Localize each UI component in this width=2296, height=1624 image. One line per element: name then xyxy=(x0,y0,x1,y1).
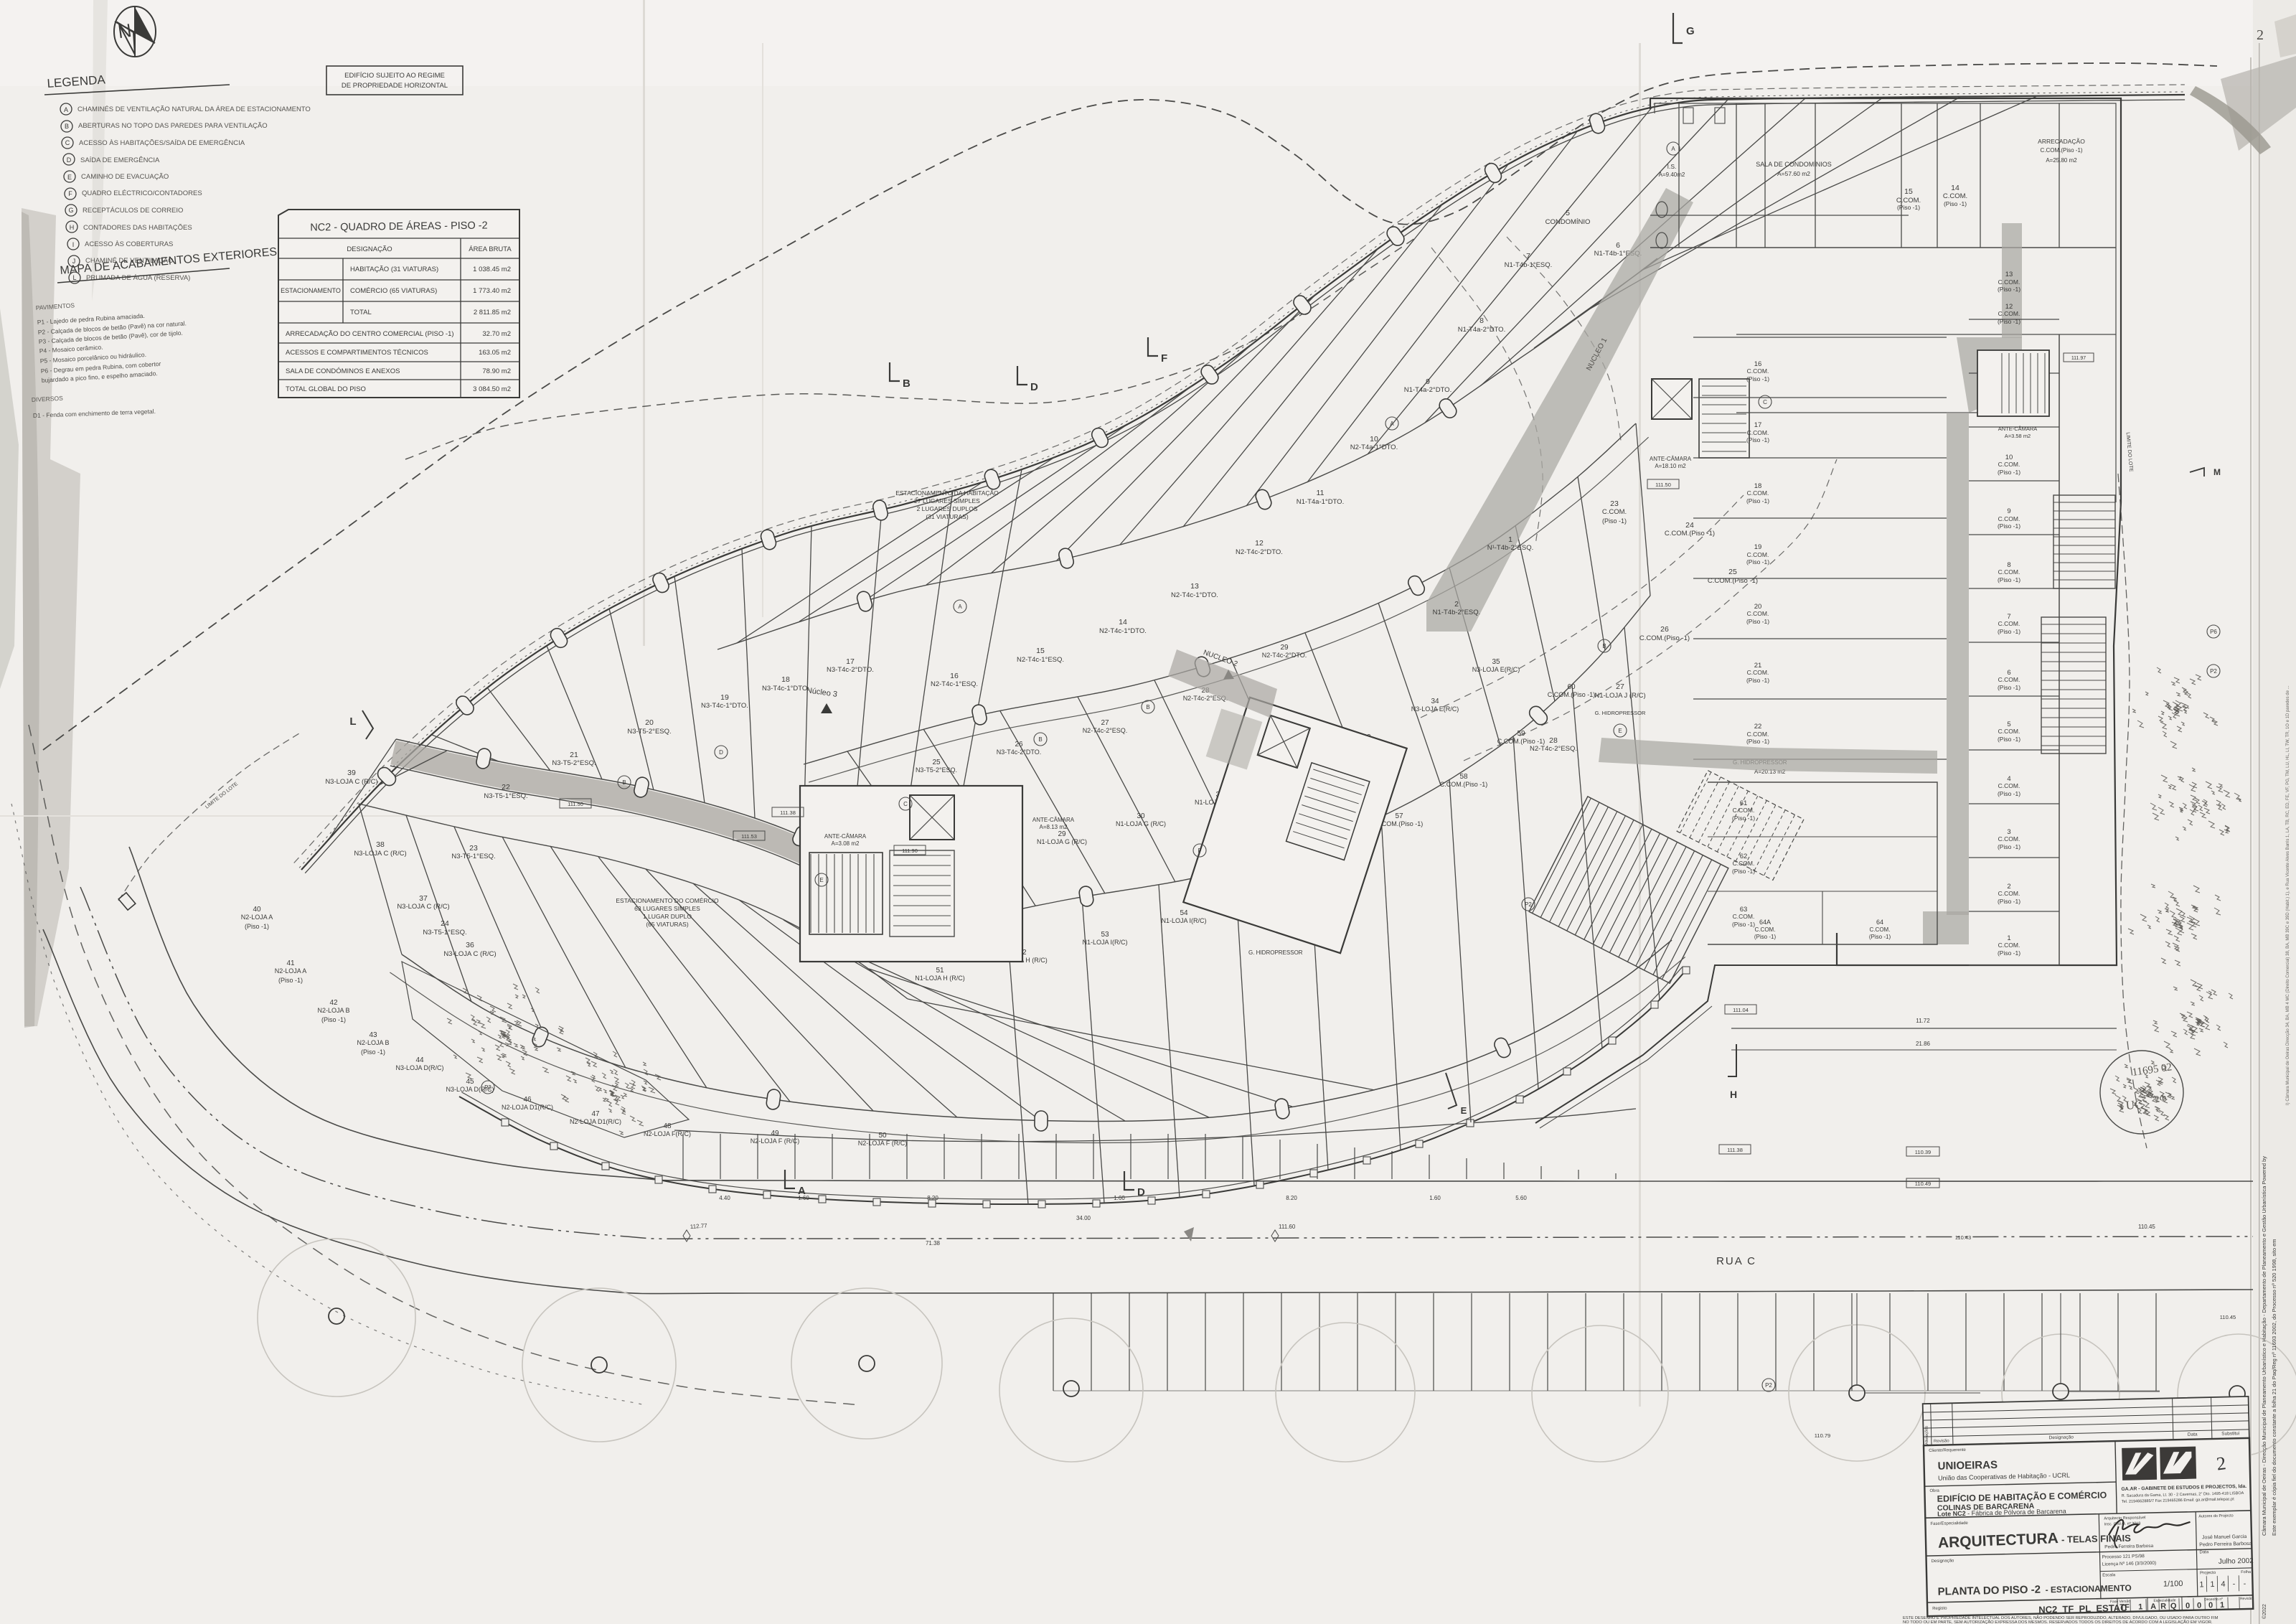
svg-text:SALA DE CONDÓMINOS E ANEXOS: SALA DE CONDÓMINOS E ANEXOS xyxy=(286,367,400,375)
svg-text:CONDOMÍNIO: CONDOMÍNIO xyxy=(1545,218,1591,226)
svg-text:2 LUGARES DUPLOS: 2 LUGARES DUPLOS xyxy=(916,505,977,512)
svg-text:I: I xyxy=(72,241,75,248)
svg-text:Julho 2002: Julho 2002 xyxy=(2219,1557,2254,1566)
svg-text:43: 43 xyxy=(369,1031,377,1039)
svg-text:N1-LOJA G (R/C): N1-LOJA G (R/C) xyxy=(1037,838,1087,845)
svg-text:ESTE DESENHO É PROPRIEDADE INT: ESTE DESENHO É PROPRIEDADE INTELECTUAL D… xyxy=(1903,1615,2219,1620)
svg-text:Este exemplar é cópia fiel do: Este exemplar é cópia fiel do documento … xyxy=(2271,1239,2277,1536)
svg-text:21.86: 21.86 xyxy=(1916,1041,1931,1047)
svg-text:PRUMADA DE ÁGUA (RESERVA): PRUMADA DE ÁGUA (RESERVA) xyxy=(86,274,190,282)
svg-text:ACESSOS E COMPARTIMENTOS TÉCNI: ACESSOS E COMPARTIMENTOS TÉCNICOS xyxy=(286,349,428,357)
svg-text:C.COM.: C.COM. xyxy=(1747,489,1769,497)
svg-text:9: 9 xyxy=(2007,507,2010,515)
svg-text:(Piso -1): (Piso -1) xyxy=(1746,558,1769,565)
svg-text:A: A xyxy=(798,1185,806,1197)
svg-text:Substitui: Substitui xyxy=(2221,1431,2239,1437)
svg-text:3 084.50 m2: 3 084.50 m2 xyxy=(473,385,511,393)
svg-text:DE PROPRIEDADE HORIZONTAL: DE PROPRIEDADE HORIZONTAL xyxy=(342,82,448,90)
svg-text:163.05 m2: 163.05 m2 xyxy=(479,349,511,357)
svg-text:110.39: 110.39 xyxy=(1915,1149,1931,1155)
svg-text:2: 2 xyxy=(2257,27,2264,43)
svg-text:N2-T4c-2°DTO.: N2-T4c-2°DTO. xyxy=(1262,652,1307,659)
svg-text:N3-LOJA C (R/C): N3-LOJA C (R/C) xyxy=(325,778,377,786)
svg-text:111.50: 111.50 xyxy=(1655,482,1671,488)
svg-text:D: D xyxy=(1030,381,1038,393)
svg-text:A: A xyxy=(1390,421,1394,427)
svg-text:(Piso -1): (Piso -1) xyxy=(1746,618,1769,625)
svg-text:64: 64 xyxy=(1876,919,1883,926)
svg-text:I) Câmara Municipal de Oeiras: I) Câmara Municipal de Oeiras Direcção 3… xyxy=(2286,685,2290,1105)
svg-text:(Piso -1): (Piso -1) xyxy=(1944,200,1967,207)
svg-text:(Piso -1): (Piso -1) xyxy=(1998,576,2020,583)
svg-text:C.COM.: C.COM. xyxy=(1755,926,1776,933)
svg-text:A=18.10 m2: A=18.10 m2 xyxy=(1655,463,1686,469)
svg-text:C.COM.: C.COM. xyxy=(1733,807,1755,814)
svg-text:N1-T4a-2°DTO.: N1-T4a-2°DTO. xyxy=(1404,386,1452,394)
svg-text:38: 38 xyxy=(376,840,385,849)
svg-text:TOTAL GLOBAL DO PISO: TOTAL GLOBAL DO PISO xyxy=(286,385,366,393)
svg-text:36: 36 xyxy=(466,941,474,949)
svg-text:17: 17 xyxy=(846,657,855,666)
svg-text:N2-LOJA F (R/C): N2-LOJA F (R/C) xyxy=(751,1137,800,1145)
svg-text:ACESSO ÀS HABITAÇÕES/SAÍDA DE: ACESSO ÀS HABITAÇÕES/SAÍDA DE EMERGÊNCIA xyxy=(79,139,245,147)
svg-text:110.45: 110.45 xyxy=(2220,1314,2236,1320)
svg-text:DESIGNAÇÃO: DESIGNAÇÃO xyxy=(347,245,392,253)
svg-text:5: 5 xyxy=(1566,209,1570,217)
svg-text:27 LUGARES SIMPLES: 27 LUGARES SIMPLES xyxy=(914,497,980,504)
svg-text:(Piso -1): (Piso -1) xyxy=(1897,204,1920,211)
svg-text:C.COM.(Piso -1): C.COM.(Piso -1) xyxy=(1665,530,1715,538)
svg-text:A=25.80 m2: A=25.80 m2 xyxy=(2046,157,2077,164)
svg-text:50: 50 xyxy=(878,1132,887,1140)
svg-text:(Piso -1): (Piso -1) xyxy=(1746,375,1769,382)
svg-text:N2-LOJA A: N2-LOJA A xyxy=(241,914,273,921)
svg-text:111.90: 111.90 xyxy=(902,848,918,854)
svg-text:A=3.08 m2: A=3.08 m2 xyxy=(832,840,860,847)
svg-text:60: 60 xyxy=(1567,683,1576,691)
svg-text:PLANTA DO PISO -2: PLANTA DO PISO -2 xyxy=(1937,1584,2041,1598)
svg-text:Processo 121 PS/98: Processo 121 PS/98 xyxy=(2102,1554,2145,1559)
svg-text:Autores do Projecto: Autores do Projecto xyxy=(2198,1513,2233,1519)
svg-text:N3-LOJA C (R/C): N3-LOJA C (R/C) xyxy=(397,903,449,911)
svg-text:C.COM.: C.COM. xyxy=(1747,669,1769,676)
svg-text:53: 53 xyxy=(1101,931,1109,939)
svg-text:27: 27 xyxy=(1101,719,1109,727)
svg-text:4: 4 xyxy=(2221,1580,2225,1589)
svg-text:- ESTACIONAMENTO: - ESTACIONAMENTO xyxy=(2045,1583,2132,1595)
svg-text:N1-LOJA J (R/C): N1-LOJA J (R/C) xyxy=(1594,692,1645,700)
svg-text:N3-LOJA C (R/C): N3-LOJA C (R/C) xyxy=(354,850,406,858)
svg-text:58: 58 xyxy=(1459,773,1468,781)
svg-text:HABITAÇÃO (31 VIATURAS): HABITAÇÃO (31 VIATURAS) xyxy=(350,266,438,273)
svg-text:C: C xyxy=(903,801,908,807)
svg-text:0: 0 xyxy=(2186,1602,2190,1610)
svg-text:E: E xyxy=(67,174,72,181)
svg-text:G: G xyxy=(68,207,73,214)
svg-text:110.43: 110.43 xyxy=(1955,1234,1971,1241)
svg-text:ESTACIONAMENTO: ESTACIONAMENTO xyxy=(281,287,341,294)
svg-text:(Piso -1): (Piso -1) xyxy=(1998,790,2020,797)
svg-text:(Piso -1): (Piso -1) xyxy=(1998,318,2020,325)
svg-text:TOTAL: TOTAL xyxy=(350,309,372,316)
svg-text:C.COM.: C.COM. xyxy=(1747,367,1769,375)
svg-text:-: - xyxy=(2233,1580,2236,1588)
svg-text:N1-LOJA H (R/C): N1-LOJA H (R/C) xyxy=(915,975,965,982)
svg-text:28: 28 xyxy=(1549,736,1558,745)
svg-text:11.72: 11.72 xyxy=(1916,1018,1930,1024)
svg-text:34.00: 34.00 xyxy=(1076,1215,1091,1221)
svg-text:N3-LOJA D(R/C): N3-LOJA D(R/C) xyxy=(395,1064,443,1071)
svg-text:N1-LOJA I(R/C): N1-LOJA I(R/C) xyxy=(1082,939,1127,946)
svg-text:B: B xyxy=(1146,704,1149,710)
svg-text:C.COM.: C.COM. xyxy=(1998,310,2020,317)
svg-text:ÁREA BRUTA: ÁREA BRUTA xyxy=(469,245,512,253)
svg-text:CAMINHO DE EVACUAÇÃO: CAMINHO DE EVACUAÇÃO xyxy=(81,173,169,181)
svg-text:18: 18 xyxy=(781,675,790,684)
svg-text:1: 1 xyxy=(2210,1580,2214,1589)
svg-text:13: 13 xyxy=(2005,271,2013,278)
svg-text:Folha: Folha xyxy=(2241,1570,2252,1574)
svg-text:111.97: 111.97 xyxy=(2071,356,2086,361)
svg-text:20: 20 xyxy=(645,718,654,727)
svg-text:110.45: 110.45 xyxy=(2138,1224,2155,1230)
svg-text:N2-T4c-1°ESQ.: N2-T4c-1°ESQ. xyxy=(931,680,978,688)
svg-text:F: F xyxy=(68,190,72,197)
svg-text:71.38: 71.38 xyxy=(926,1240,941,1247)
svg-text:22: 22 xyxy=(502,783,510,792)
svg-text:ESTACIONAMENTO DA HABITAÇÃO: ESTACIONAMENTO DA HABITAÇÃO xyxy=(895,489,999,497)
svg-text:Revisão: Revisão xyxy=(2240,1597,2253,1601)
svg-text:C.COM.: C.COM. xyxy=(1747,429,1769,436)
svg-text:Projecto: Projecto xyxy=(2200,1571,2216,1576)
svg-text:64A: 64A xyxy=(1759,919,1771,926)
svg-text:N2-LOJA B: N2-LOJA B xyxy=(317,1007,349,1014)
svg-text:Revisão: Revisão xyxy=(1934,1439,1949,1444)
svg-text:M: M xyxy=(2213,467,2221,477)
svg-text:H: H xyxy=(70,224,75,231)
svg-text:C.COM.: C.COM. xyxy=(1998,942,2020,949)
svg-text:12: 12 xyxy=(1255,539,1264,548)
svg-text:44: 44 xyxy=(415,1056,424,1064)
svg-text:A: A xyxy=(2150,1602,2156,1611)
svg-text:(Piso -1): (Piso -1) xyxy=(1998,684,2020,691)
svg-text:N3-T5-2°ESQ.: N3-T5-2°ESQ. xyxy=(916,766,957,774)
svg-text:A=57.60 m2: A=57.60 m2 xyxy=(1777,170,1810,177)
svg-text:D: D xyxy=(719,749,723,756)
svg-text:N1-LOJA I(R/C): N1-LOJA I(R/C) xyxy=(1161,917,1206,924)
svg-text:B: B xyxy=(65,123,69,130)
svg-text:N1-T4a-2°DTO.: N1-T4a-2°DTO. xyxy=(1458,326,1505,334)
svg-text:N2-LOJA F(R/C): N2-LOJA F(R/C) xyxy=(644,1130,691,1137)
svg-text:Data: Data xyxy=(2188,1432,2198,1437)
svg-text:P6: P6 xyxy=(2210,629,2217,635)
svg-text:25: 25 xyxy=(1728,568,1737,576)
svg-text:I.S.: I.S. xyxy=(1667,163,1677,170)
svg-text:Fase/Especialidade: Fase/Especialidade xyxy=(1930,1521,1968,1526)
svg-text:ANTE-CÂMARA: ANTE-CÂMARA xyxy=(824,833,867,840)
svg-text:C.COM.: C.COM. xyxy=(1870,926,1891,933)
svg-text:(Piso -1): (Piso -1) xyxy=(1732,868,1755,875)
svg-text:C.COM.: C.COM. xyxy=(1998,728,2020,735)
svg-text:0: 0 xyxy=(2208,1601,2213,1610)
svg-text:0: 0 xyxy=(2197,1601,2201,1610)
svg-text:Designação: Designação xyxy=(1932,1559,1954,1564)
svg-text:RUA C: RUA C xyxy=(1716,1255,1756,1267)
svg-text:(Piso -1): (Piso -1) xyxy=(1602,517,1627,525)
svg-text:Q: Q xyxy=(2170,1602,2177,1610)
svg-text:N3-T5-1°ESQ.: N3-T5-1°ESQ. xyxy=(423,929,466,937)
svg-text:N1-T4a-1°DTO.: N1-T4a-1°DTO. xyxy=(1297,498,1344,506)
svg-text:Câmara Municipal de Oeiras - D: Câmara Municipal de Oeiras - Direcção Mu… xyxy=(2261,1156,2267,1536)
svg-text:UC: UC xyxy=(2125,1097,2143,1112)
svg-text:17: 17 xyxy=(1754,421,1762,429)
svg-text:1: 1 xyxy=(2199,1580,2203,1589)
svg-text:(Piso -1): (Piso -1) xyxy=(1998,949,2020,957)
svg-text:(Piso -1): (Piso -1) xyxy=(1998,469,2020,476)
svg-text:N3-T5-1°ESQ.: N3-T5-1°ESQ. xyxy=(484,792,527,800)
svg-text:N3-T4c-1°DTO.: N3-T4c-1°DTO. xyxy=(701,702,748,710)
svg-text:111.50: 111.50 xyxy=(568,801,583,807)
svg-text:C.COM.(Piso -1): C.COM.(Piso -1) xyxy=(2040,147,2082,154)
svg-text:6: 6 xyxy=(1616,241,1620,250)
svg-text:15: 15 xyxy=(1904,187,1913,196)
svg-text:E: E xyxy=(1461,1105,1467,1116)
svg-text:ANTE-CÂMARA: ANTE-CÂMARA xyxy=(1650,456,1692,462)
svg-text:(Piso -1): (Piso -1) xyxy=(1998,286,2020,293)
svg-text:1/100: 1/100 xyxy=(2163,1580,2183,1589)
svg-text:A=8.13 m2: A=8.13 m2 xyxy=(1040,824,1068,830)
svg-text:40: 40 xyxy=(253,906,261,914)
svg-text:(Piso -1): (Piso -1) xyxy=(361,1048,385,1056)
svg-text:N3-LOJA C (R/C): N3-LOJA C (R/C) xyxy=(443,950,496,958)
svg-text:C.COM.: C.COM. xyxy=(1998,515,2020,522)
svg-text:(Piso -1): (Piso -1) xyxy=(1746,738,1769,745)
svg-text:2Φ: 2Φ xyxy=(2154,1092,2168,1105)
svg-text:CONTADORES DAS HABITAÇÕES: CONTADORES DAS HABITAÇÕES xyxy=(83,224,192,232)
svg-text:Obra: Obra xyxy=(1929,1489,1939,1493)
svg-text:9: 9 xyxy=(1426,377,1430,386)
svg-text:30: 30 xyxy=(1137,812,1145,820)
svg-text:F: F xyxy=(1198,848,1202,854)
svg-text:13: 13 xyxy=(1190,582,1199,591)
svg-text:78.90 m2: 78.90 m2 xyxy=(482,367,511,375)
svg-text:35: 35 xyxy=(1492,658,1500,666)
svg-text:(65 VIATURAS): (65 VIATURAS) xyxy=(646,921,689,928)
svg-text:R: R xyxy=(2160,1602,2166,1611)
svg-text:39: 39 xyxy=(347,769,356,777)
svg-text:C: C xyxy=(65,139,70,146)
svg-text:(Piso -1): (Piso -1) xyxy=(1998,736,2020,743)
svg-text:B: B xyxy=(1038,736,1042,743)
svg-text:57: 57 xyxy=(1395,812,1403,820)
svg-text:P2: P2 xyxy=(2210,668,2217,675)
svg-text:23: 23 xyxy=(1610,499,1619,508)
svg-text:A=9.40m2: A=9.40m2 xyxy=(1659,172,1685,178)
svg-text:C.COM.: C.COM. xyxy=(1747,551,1769,558)
svg-text:110.79: 110.79 xyxy=(1815,1432,1830,1439)
svg-text:16: 16 xyxy=(950,672,959,680)
svg-text:C.COM.: C.COM. xyxy=(1998,676,2020,683)
svg-text:37: 37 xyxy=(419,894,428,903)
svg-text:(Piso -1): (Piso -1) xyxy=(1998,898,2020,905)
svg-text:Registo: Registo xyxy=(1932,1606,1947,1610)
svg-text:P2: P2 xyxy=(484,1084,491,1091)
svg-text:N3-T5-1°ESQ.: N3-T5-1°ESQ. xyxy=(451,853,495,860)
svg-text:C.COM.: C.COM. xyxy=(1998,278,2020,286)
svg-text:A: A xyxy=(64,106,68,113)
svg-text:N2-T4c-1°DTO.: N2-T4c-1°DTO. xyxy=(1171,591,1218,599)
svg-text:E: E xyxy=(819,877,823,883)
svg-text:111.04: 111.04 xyxy=(1733,1007,1749,1013)
svg-text:(Piso -1): (Piso -1) xyxy=(1998,843,2020,850)
svg-text:N2-T4c-2°ESQ.: N2-T4c-2°ESQ. xyxy=(1530,745,1577,753)
svg-text:15: 15 xyxy=(1036,647,1045,655)
svg-text:2 811.85 m2: 2 811.85 m2 xyxy=(474,309,511,316)
svg-text:21: 21 xyxy=(570,751,578,759)
svg-text:F: F xyxy=(1161,352,1167,365)
svg-text:14: 14 xyxy=(1119,618,1127,626)
svg-text:(Piso -1): (Piso -1) xyxy=(278,977,303,984)
svg-text:D: D xyxy=(1137,1186,1145,1198)
svg-text:CHAMINÉS DE VENTILAÇÃO NATURAL: CHAMINÉS DE VENTILAÇÃO NATURAL DA ÁREA D… xyxy=(77,105,311,113)
svg-text:Designação: Designação xyxy=(2049,1435,2074,1440)
svg-text:1.60: 1.60 xyxy=(1114,1195,1125,1201)
svg-text:Alterações: Alterações xyxy=(1924,1426,1929,1445)
svg-text:N2-T4c-2°ESQ.: N2-T4c-2°ESQ. xyxy=(1083,727,1128,734)
svg-text:C.COM.(Piso -1): C.COM.(Piso -1) xyxy=(1548,691,1596,698)
svg-text:A: A xyxy=(1671,146,1675,152)
svg-text:N2-T4c-1°DTO.: N2-T4c-1°DTO. xyxy=(1099,627,1147,635)
svg-text:UNIOEIRAS: UNIOEIRAS xyxy=(1937,1459,1998,1473)
svg-text:1 773.40 m2: 1 773.40 m2 xyxy=(473,287,511,295)
svg-text:N1-LOJA G (R/C): N1-LOJA G (R/C) xyxy=(1116,820,1166,827)
svg-text:ANTE-CÂMARA: ANTE-CÂMARA xyxy=(1998,426,2038,432)
svg-text:(Piso -1): (Piso -1) xyxy=(321,1016,346,1023)
svg-text:P2: P2 xyxy=(1525,901,1532,908)
svg-text:©2022: ©2022 xyxy=(2262,1604,2267,1619)
svg-text:1: 1 xyxy=(1508,535,1512,544)
svg-text:112.77: 112.77 xyxy=(690,1222,708,1230)
svg-text:8: 8 xyxy=(1479,316,1484,325)
svg-text:25: 25 xyxy=(932,759,941,766)
svg-text:C.COM.: C.COM. xyxy=(1943,192,1967,200)
svg-text:N¹-T4b-2°ESQ.: N¹-T4b-2°ESQ. xyxy=(1487,544,1534,552)
svg-text:(Piso -1): (Piso -1) xyxy=(1869,934,1891,940)
svg-text:19: 19 xyxy=(1754,543,1762,551)
svg-text:(Piso -1): (Piso -1) xyxy=(1998,628,2020,635)
svg-text:(Piso -1): (Piso -1) xyxy=(245,923,269,930)
svg-text:1.60: 1.60 xyxy=(1429,1195,1441,1201)
svg-text:N2-T4c-2°DTO.: N2-T4c-2°DTO. xyxy=(1236,548,1283,556)
svg-text:A: A xyxy=(958,604,962,610)
svg-text:1 038.45 m2: 1 038.45 m2 xyxy=(473,266,511,273)
svg-text:C.COM.(Piso -1): C.COM.(Piso -1) xyxy=(1440,781,1488,788)
svg-text:63 LUGARES SIMPLES: 63 LUGARES SIMPLES xyxy=(634,905,700,912)
svg-text:49: 49 xyxy=(771,1130,779,1137)
svg-text:ESTACIONAMENTO DO COMÉRCIO: ESTACIONAMENTO DO COMÉRCIO xyxy=(616,897,719,904)
svg-text:N1-T4b-2°ESQ.: N1-T4b-2°ESQ. xyxy=(1433,609,1481,616)
svg-text:TF: TF xyxy=(2119,1603,2130,1612)
svg-text:(Piso -1): (Piso -1) xyxy=(1746,677,1769,684)
svg-text:N2-T4a-1°DTO.: N2-T4a-1°DTO. xyxy=(1350,443,1398,451)
svg-text:26: 26 xyxy=(1660,625,1669,634)
svg-text:111.60: 111.60 xyxy=(1279,1224,1296,1230)
svg-text:N2-LOJA A: N2-LOJA A xyxy=(275,967,307,975)
svg-text:COMÉRCIO (65 VIATURAS): COMÉRCIO (65 VIATURAS) xyxy=(350,287,437,295)
svg-text:N2-LOJA F (R/C): N2-LOJA F (R/C) xyxy=(858,1140,908,1147)
svg-text:EDIFÍCIO SUJEITO AO REGIME: EDIFÍCIO SUJEITO AO REGIME xyxy=(344,72,445,80)
svg-text:L: L xyxy=(349,715,356,728)
svg-text:1: 1 xyxy=(2138,1602,2142,1611)
svg-text:27: 27 xyxy=(1616,682,1624,691)
svg-text:C.COM.: C.COM. xyxy=(1998,620,2020,627)
svg-text:111.38: 111.38 xyxy=(1727,1147,1743,1153)
svg-text:19: 19 xyxy=(720,693,729,702)
svg-text:(Piso -1): (Piso -1) xyxy=(1732,921,1755,928)
svg-text:(Piso -1): (Piso -1) xyxy=(1746,436,1769,443)
svg-text:RECEPTÁCULOS DE CORREIO: RECEPTÁCULOS DE CORREIO xyxy=(83,207,183,215)
svg-text:111.38: 111.38 xyxy=(780,809,796,816)
svg-text:NO TODO OU EM PARTE, SEM AUTOR: NO TODO OU EM PARTE, SEM AUTORIZAÇÃO EXP… xyxy=(1903,1620,2213,1624)
svg-text:C.COM.: C.COM. xyxy=(1747,610,1769,617)
svg-text:C.COM.: C.COM. xyxy=(1747,731,1769,738)
svg-text:N3-T4c-1°DTO.: N3-T4c-1°DTO. xyxy=(762,685,809,693)
svg-text:110.49: 110.49 xyxy=(1915,1181,1931,1187)
svg-text:10: 10 xyxy=(1370,435,1378,443)
svg-text:42: 42 xyxy=(329,999,338,1007)
svg-text:8.20: 8.20 xyxy=(1286,1195,1297,1201)
svg-text:NC2_TF_PL_ESTAC: NC2_TF_PL_ESTAC xyxy=(2038,1602,2127,1615)
svg-text:1: 1 xyxy=(2220,1601,2224,1610)
svg-text:C.COM.: C.COM. xyxy=(1733,913,1755,920)
svg-text:41: 41 xyxy=(286,959,295,967)
svg-text:29: 29 xyxy=(1058,830,1066,838)
svg-text:H: H xyxy=(1730,1089,1737,1100)
svg-text:N2-LOJA B: N2-LOJA B xyxy=(357,1039,389,1046)
svg-text:Escala: Escala xyxy=(2102,1573,2116,1577)
svg-text:C.COM.: C.COM. xyxy=(1998,782,2020,789)
svg-text:24: 24 xyxy=(441,919,449,928)
svg-text:- TELAS FINAIS: - TELAS FINAIS xyxy=(2061,1533,2131,1545)
svg-text:NC2 - QUADRO DE ÁREAS - PISO -: NC2 - QUADRO DE ÁREAS - PISO -2 xyxy=(310,219,488,233)
svg-text:N3-T5-2°ESQ.: N3-T5-2°ESQ. xyxy=(552,759,596,767)
svg-text:C.COM.: C.COM. xyxy=(1998,890,2020,897)
svg-text:SALA DE CONDOMÍNIOS: SALA DE CONDOMÍNIOS xyxy=(1756,161,1832,168)
svg-text:N3-LOJA E(R/C): N3-LOJA E(R/C) xyxy=(1411,705,1459,713)
svg-text:N2-T4c-1°ESQ.: N2-T4c-1°ESQ. xyxy=(1017,656,1064,664)
svg-text:34: 34 xyxy=(1431,698,1439,705)
svg-text:D: D xyxy=(67,156,72,164)
svg-text:G. HIDROPRESSOR: G. HIDROPRESSOR xyxy=(1595,710,1646,716)
svg-text:G. HIDROPRESSOR: G. HIDROPRESSOR xyxy=(1248,949,1303,956)
svg-text:(31 VIATURAS): (31 VIATURAS) xyxy=(926,513,969,520)
svg-text:Cliente/Requerente: Cliente/Requerente xyxy=(1929,1448,1966,1453)
svg-text:B: B xyxy=(903,377,911,390)
svg-text:ARRECADAÇÃO: ARRECADAÇÃO xyxy=(2038,138,2085,145)
svg-text:C.COM.: C.COM. xyxy=(1998,568,2020,576)
svg-text:N3-T4c-2°DTO.: N3-T4c-2°DTO. xyxy=(997,748,1041,756)
svg-text:32.70 m2: 32.70 m2 xyxy=(482,330,511,338)
svg-text:ARRECADAÇÃO DO CENTRO COMERCIA: ARRECADAÇÃO DO CENTRO COMERCIAL (PISO -1… xyxy=(286,330,454,338)
svg-text:4.40: 4.40 xyxy=(719,1195,730,1201)
svg-text:2: 2 xyxy=(1454,600,1459,609)
svg-text:B: B xyxy=(1602,643,1606,649)
svg-text:P2: P2 xyxy=(1765,1382,1772,1389)
svg-text:José Manuel Garcia: José Manuel Garcia xyxy=(2202,1534,2247,1540)
svg-text:-: - xyxy=(2244,1580,2246,1588)
svg-text:C.COM.: C.COM. xyxy=(1998,835,2020,842)
svg-text:QUADRO ELÉCTRICO/CONTADORES: QUADRO ELÉCTRICO/CONTADORES xyxy=(82,189,202,197)
